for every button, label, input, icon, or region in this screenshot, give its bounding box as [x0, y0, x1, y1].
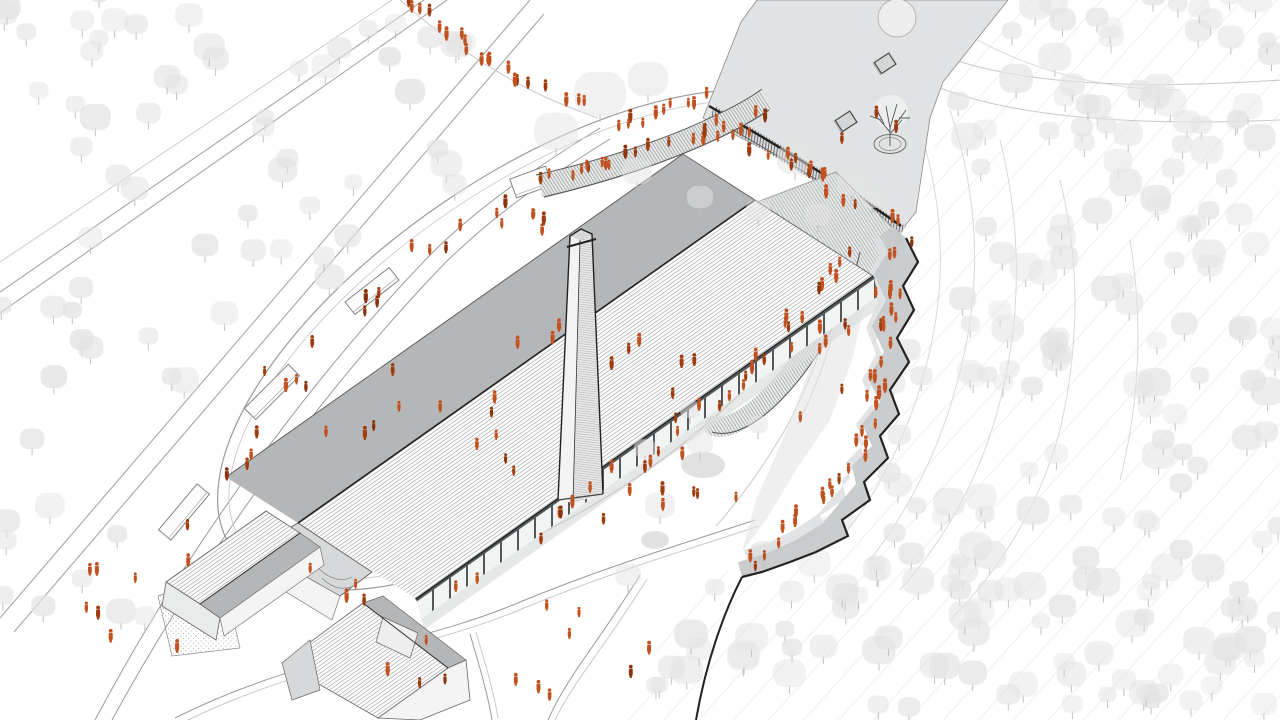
- lawn-patch: [641, 531, 669, 549]
- plaza-circle-feature: [878, 0, 916, 37]
- scene-svg: Aerial architectural site illustration: [0, 0, 1280, 720]
- lawn-patch: [681, 452, 725, 478]
- site-plan-illustration: Aerial architectural site illustration: [0, 0, 1280, 720]
